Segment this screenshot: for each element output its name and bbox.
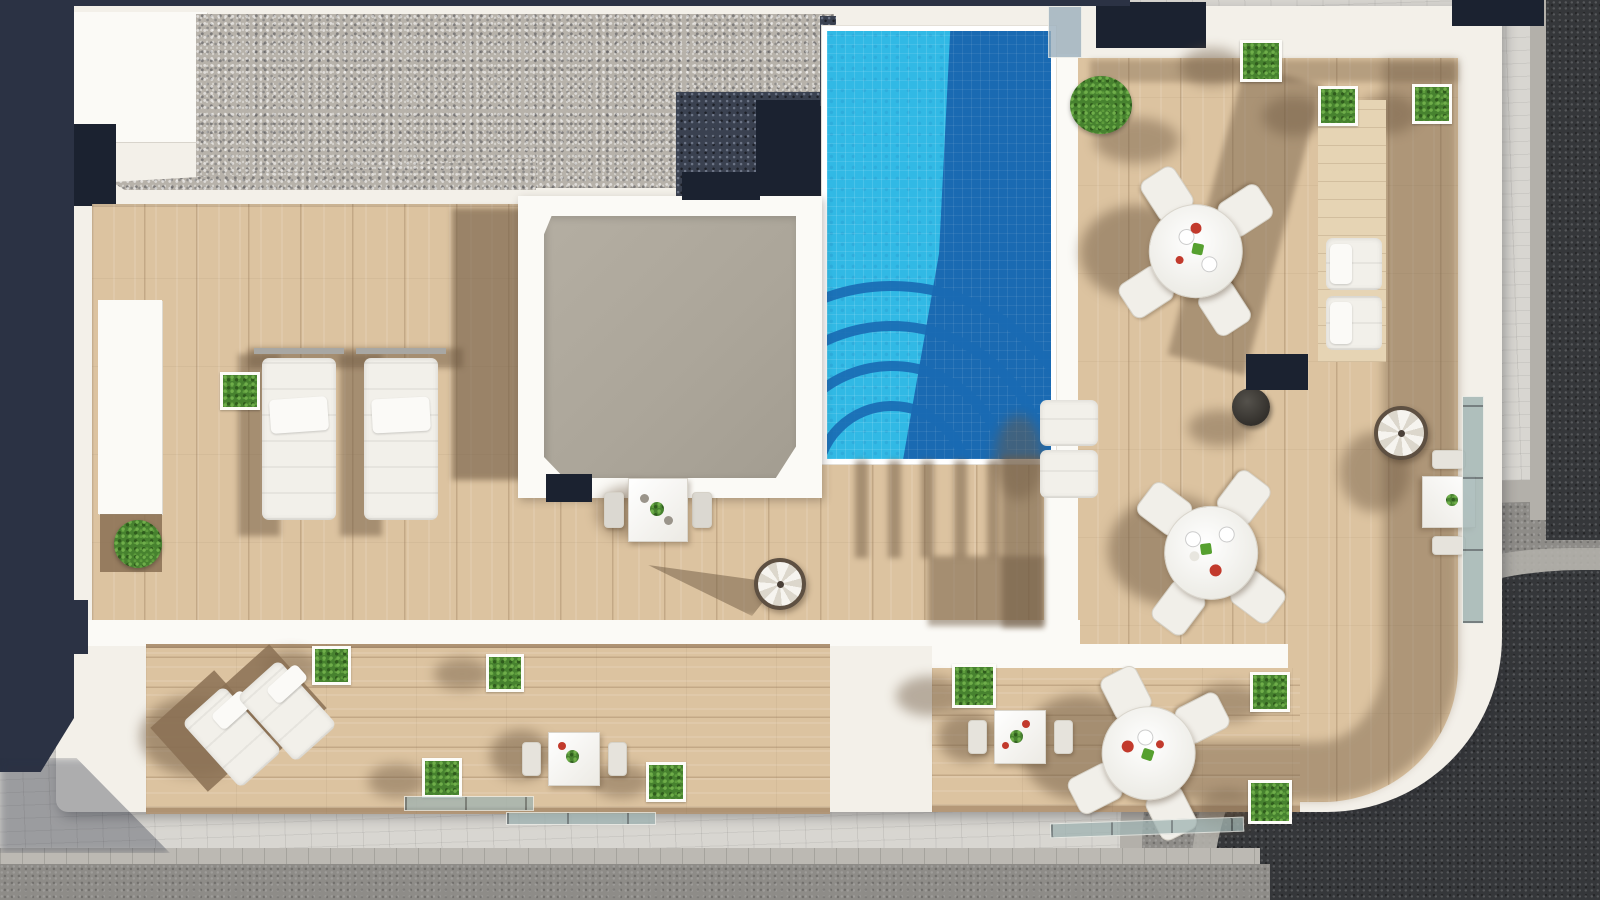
planter-roof-top — [1240, 40, 1282, 82]
table-item-red — [1022, 720, 1030, 728]
green-dish — [1191, 243, 1204, 256]
parasol-center — [754, 558, 806, 610]
table-plant — [1446, 494, 1458, 506]
swimming-pool — [822, 26, 1056, 464]
planter-foliage — [1321, 89, 1355, 123]
left-street-shadow-step — [72, 600, 88, 654]
left-street-shadow-band — [0, 0, 74, 772]
stacked-lounger-cushion-3 — [1040, 400, 1098, 446]
glass-balustrade-bottom-center — [506, 812, 656, 825]
lounger-frame-bar — [356, 348, 446, 354]
table-plant — [650, 502, 664, 516]
bistro-chair-right — [608, 742, 627, 776]
left-planter-bench — [98, 300, 162, 514]
glass-balustrade-right — [1462, 396, 1484, 624]
sun-lounger-1 — [262, 358, 336, 520]
planter-bl-1 — [312, 646, 351, 685]
bistro-chair-left — [604, 492, 624, 528]
planter-foliage — [1415, 87, 1449, 121]
planter-br-2 — [1250, 672, 1290, 712]
stacked-lounger-pillow-1 — [1330, 244, 1352, 284]
planter-foliage — [1253, 675, 1287, 709]
planter-bl-4 — [646, 762, 686, 802]
pool-top-glass-panel — [1048, 6, 1082, 58]
bottom-road — [0, 864, 1270, 900]
planter-foliage — [1251, 783, 1289, 821]
stacked-lounger-pillow-2 — [1330, 302, 1352, 344]
lounger-pillow — [371, 397, 431, 434]
dark-round-planter — [1232, 388, 1270, 426]
table-plant — [1010, 730, 1023, 743]
lounger-cushion — [364, 358, 438, 520]
planter-foliage — [955, 667, 993, 705]
round-dining-set-top — [1106, 161, 1284, 339]
courtyard-dark-panel-bottom — [546, 474, 592, 502]
bistro-chair-left — [522, 742, 541, 776]
planter-bl-2 — [486, 654, 524, 692]
stacked-lounger-shadow — [995, 415, 1043, 500]
planter-foliage — [425, 761, 459, 795]
right-asphalt-road — [1546, 0, 1600, 540]
pool-ladder-shadow-1 — [855, 460, 868, 558]
lounger-frame-bar — [254, 348, 344, 354]
planter-foliage — [649, 765, 683, 799]
planter-shadow-c — [368, 764, 426, 798]
roof-dark-box-top-right — [1452, 0, 1544, 26]
table-item-red2 — [1002, 742, 1009, 749]
sun-lounger-2 — [364, 358, 438, 520]
planter-by-loungers — [220, 372, 260, 410]
bistro-chair-right — [1432, 536, 1466, 555]
planter-ne-2 — [1412, 84, 1452, 124]
roof-dark-panel-pool-right — [1096, 2, 1206, 48]
bistro-chair-left — [968, 720, 987, 754]
round-dining-set-middle — [1125, 467, 1294, 636]
table-item-grey — [640, 494, 649, 503]
courtyard-dark-panel-top — [682, 172, 760, 200]
planter-bl-3 — [422, 758, 462, 798]
courtyard-floor — [544, 216, 796, 478]
roof-dark-panel-center — [756, 100, 826, 198]
planter-shadow-b — [434, 658, 490, 690]
top-edge-dark-strip — [0, 0, 1130, 6]
roof-box-top-left — [72, 12, 207, 142]
bistro-chair-right — [692, 492, 712, 528]
stacked-lounger-cushion-4 — [1040, 450, 1098, 498]
planter-foliage — [489, 657, 521, 689]
planter-ne-1 — [1318, 86, 1358, 126]
right-terrace-dark-panel — [1246, 354, 1308, 390]
left-round-bush — [114, 520, 162, 568]
planter-shadow-j — [1180, 48, 1244, 86]
deck-separator-horizontal — [58, 620, 1080, 646]
bistro-set-lower-right — [968, 708, 1072, 764]
planter-foliage — [223, 375, 257, 407]
bistro-set-center — [602, 478, 712, 540]
table-item-grey2 — [664, 516, 673, 525]
planter-foliage — [1243, 43, 1279, 79]
planter-foliage — [315, 649, 348, 682]
planter-br-3 — [1248, 780, 1292, 824]
right-gutter-stripe — [1530, 0, 1546, 520]
pool-lower-shadow-band — [928, 556, 1044, 626]
green-dish — [1200, 543, 1212, 555]
round-bush-top-right — [1070, 76, 1132, 134]
bistro-chair-left — [1432, 450, 1466, 469]
table-item-red — [558, 742, 566, 750]
lounger-cushion — [262, 358, 336, 520]
rooftop-render-canvas — [0, 0, 1600, 900]
table-plant — [566, 750, 579, 763]
planter-shadow-h — [1262, 96, 1324, 136]
parasol-right — [1374, 406, 1428, 460]
planter-br-1 — [952, 664, 996, 708]
pool-ladder-shadow-4 — [954, 460, 967, 558]
glass-balustrade-bottom-left — [404, 796, 534, 811]
pool-ladder-shadow-2 — [888, 460, 901, 558]
pool-ladder-shadow-3 — [921, 460, 934, 558]
bistro-set-lower-left — [522, 730, 626, 786]
lounger-pillow — [269, 396, 329, 434]
